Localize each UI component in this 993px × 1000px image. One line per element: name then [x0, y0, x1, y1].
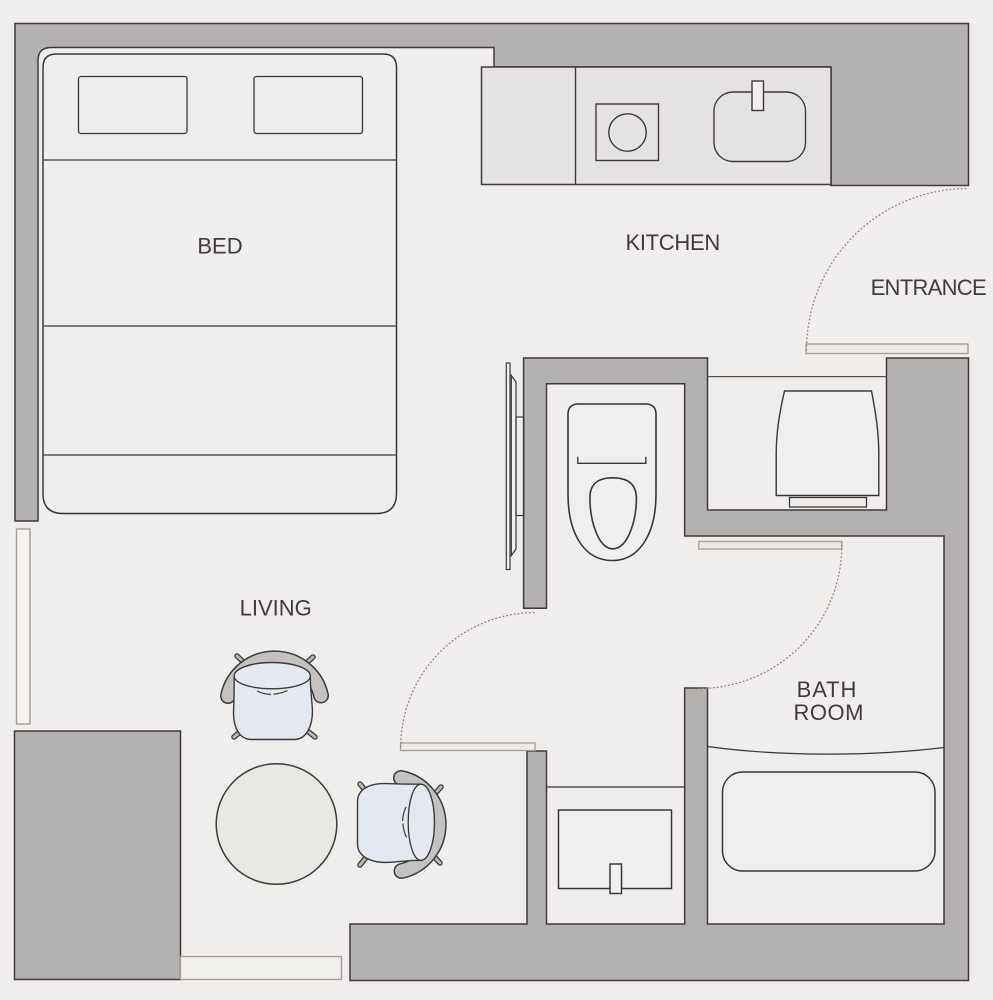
svg-text:KITCHEN: KITCHEN — [625, 230, 719, 255]
svg-text:ENTRANCE: ENTRANCE — [871, 275, 986, 300]
svg-text:BED: BED — [197, 234, 242, 259]
svg-text:ROOM: ROOM — [793, 700, 863, 725]
svg-text:BATH: BATH — [797, 677, 858, 702]
svg-text:LIVING: LIVING — [240, 596, 312, 621]
